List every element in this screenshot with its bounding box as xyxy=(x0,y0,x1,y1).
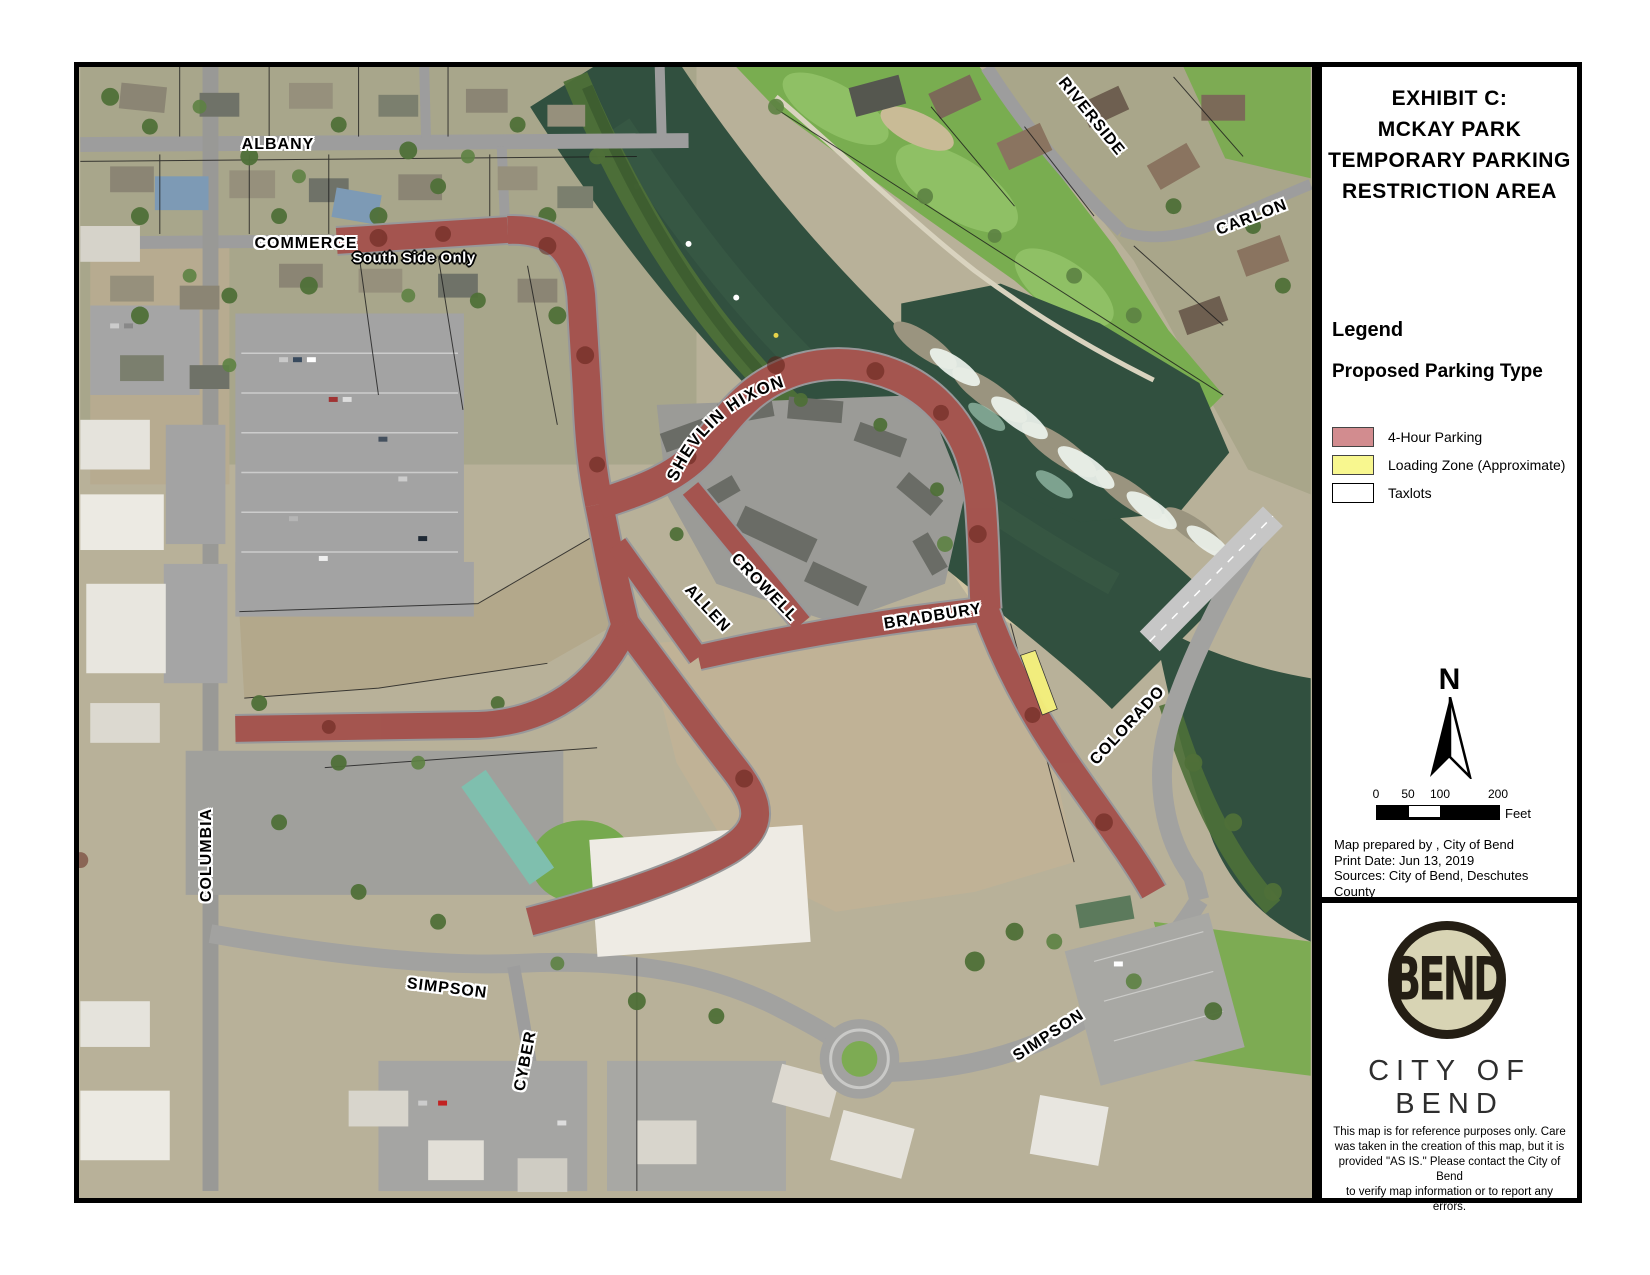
legend-item-4-hour-parking: 4-Hour Parking xyxy=(1332,423,1571,451)
disclaimer-line: to verify map information or to report a… xyxy=(1330,1185,1569,1215)
scale-tick: 100 xyxy=(1430,787,1450,801)
legend-heading: Legend xyxy=(1332,319,1403,342)
street-label-columbia: COLUMBIA xyxy=(198,808,216,902)
credit-line: Print Date: Jun 13, 2019 xyxy=(1334,853,1571,869)
scale-bar: 0 50 100 200 Feet xyxy=(1322,787,1577,837)
credit-line: Map prepared by , City of Bend xyxy=(1334,837,1571,853)
credit-line: Sources: City of Bend, Deschutes County xyxy=(1334,868,1571,899)
legend-item-label: Taxlots xyxy=(1388,485,1432,501)
street-label-commerce: COMMERCE xyxy=(254,235,357,253)
title-line: TEMPORARY PARKING xyxy=(1322,145,1577,176)
disclaimer: This map is for reference purposes only.… xyxy=(1330,1125,1569,1215)
city-name: CITY OF BEND xyxy=(1322,1055,1577,1121)
simpson-roundabout xyxy=(820,1019,900,1099)
disclaimer-line: This map is for reference purposes only.… xyxy=(1330,1125,1569,1140)
scale-tick: 200 xyxy=(1488,787,1508,801)
legend-item-taxlots: Taxlots xyxy=(1332,479,1571,507)
scale-tick: 50 xyxy=(1401,787,1414,801)
disclaimer-line: was taken in the creation of this map, b… xyxy=(1330,1140,1569,1155)
map-credits: Map prepared by , City of Bend Print Dat… xyxy=(1334,837,1571,899)
info-panel: EXHIBIT C: MCKAY PARK TEMPORARY PARKING … xyxy=(1317,62,1582,1203)
taxlots-swatch xyxy=(1332,483,1374,503)
panel-top-box: EXHIBIT C: MCKAY PARK TEMPORARY PARKING … xyxy=(1322,67,1577,903)
legend-group-heading: Proposed Parking Type xyxy=(1332,355,1557,388)
north-arrow-icon xyxy=(1426,697,1474,779)
map-canvas: SHEVLIN HIXON ALBANY COMMERCE South Side… xyxy=(74,62,1317,1203)
parking-swatch xyxy=(1332,427,1374,447)
scale-bar-graphic xyxy=(1376,805,1500,820)
panel-logo-box: BEND CITY OF BEND This map is for refere… xyxy=(1322,903,1577,1198)
loading-zone-swatch xyxy=(1332,455,1374,475)
legend-items: 4-Hour Parking Loading Zone (Approximate… xyxy=(1332,423,1571,507)
exhibit-sheet: SHEVLIN HIXON ALBANY COMMERCE South Side… xyxy=(0,0,1650,1275)
north-arrow: N xyxy=(1322,665,1577,779)
bend-logo-monogram: BEND xyxy=(1391,946,1504,1015)
scale-tick: 0 xyxy=(1373,787,1380,801)
street-label-albany: ALBANY xyxy=(242,136,315,154)
street-label-south-side-only: South Side Only xyxy=(352,250,475,267)
map-title: EXHIBIT C: MCKAY PARK TEMPORARY PARKING … xyxy=(1322,83,1577,207)
legend-item-loading-zone: Loading Zone (Approximate) xyxy=(1332,451,1571,479)
title-line: RESTRICTION AREA xyxy=(1322,176,1577,207)
legend-item-label: Loading Zone (Approximate) xyxy=(1388,457,1565,473)
title-line: MCKAY PARK xyxy=(1322,114,1577,145)
city-of-bend-logo: BEND xyxy=(1388,921,1506,1039)
north-arrow-label: N xyxy=(1322,665,1577,695)
disclaimer-line: provided "AS IS." Please contact the Cit… xyxy=(1330,1155,1569,1185)
scale-bar-white-segment xyxy=(1409,806,1440,817)
legend-item-label: 4-Hour Parking xyxy=(1388,429,1482,445)
scale-unit: Feet xyxy=(1505,806,1531,821)
title-line: EXHIBIT C: xyxy=(1322,83,1577,114)
